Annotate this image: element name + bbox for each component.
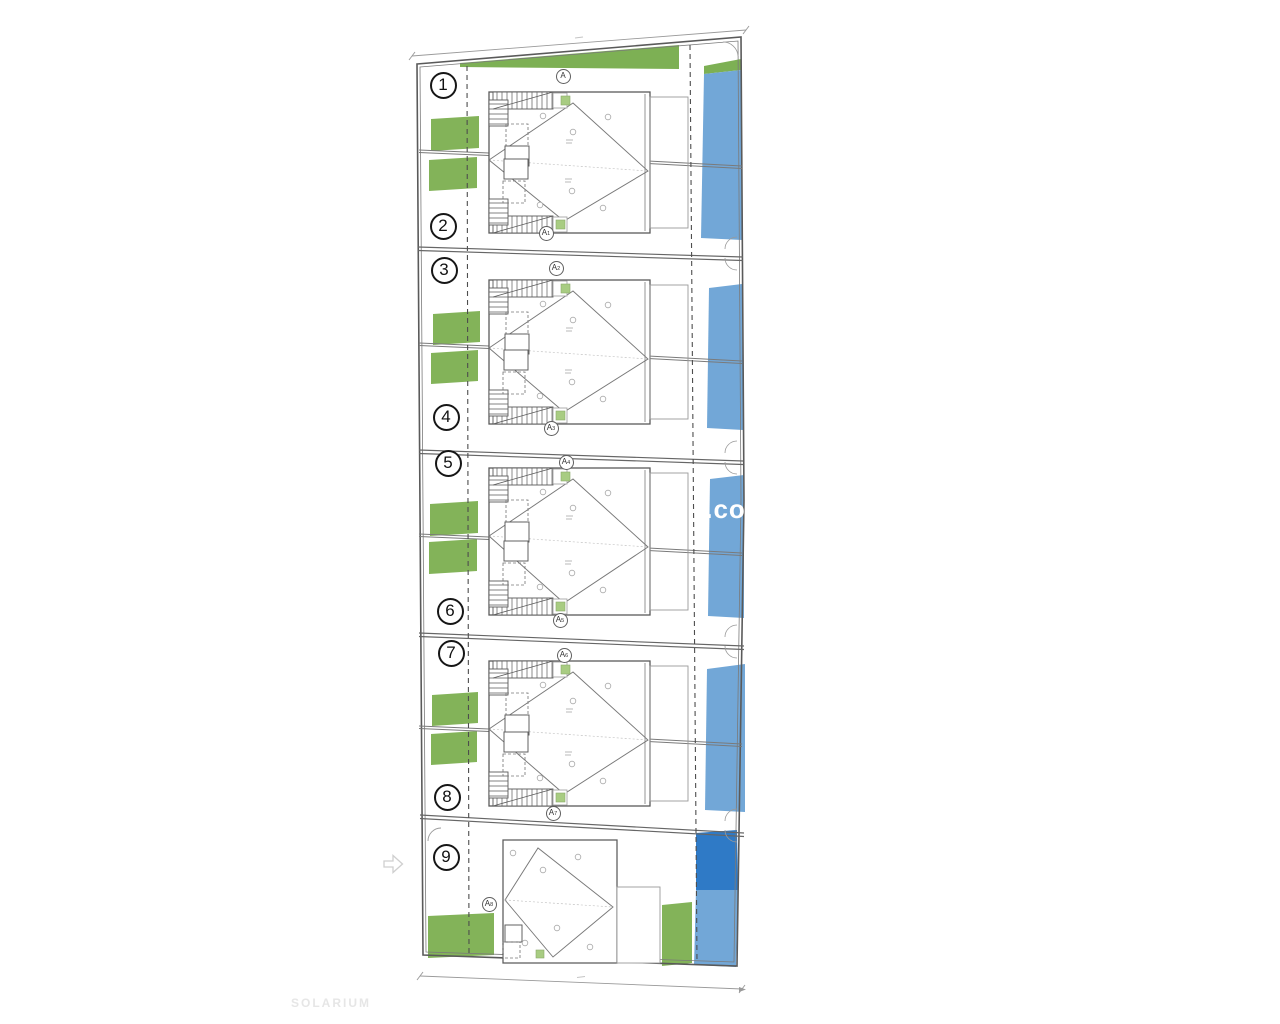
roof-drain xyxy=(554,925,560,931)
section-marker-a8: A8 xyxy=(482,897,497,912)
garden-rect xyxy=(429,157,477,191)
setback-dashed-line xyxy=(690,45,697,963)
section-marker-a7: A7 xyxy=(546,806,561,821)
dimension-label-mark xyxy=(575,37,583,38)
orientation-arrow-icon xyxy=(384,856,403,873)
pool-rect xyxy=(694,890,738,967)
garden-rect xyxy=(428,913,494,958)
dimension-line-top xyxy=(412,30,746,56)
corner-arc xyxy=(725,441,737,453)
roof-drain xyxy=(569,570,575,576)
entry-green-square xyxy=(561,96,570,105)
roof-drain xyxy=(537,584,543,590)
entry-green-square xyxy=(561,284,570,293)
roof-drain xyxy=(605,683,611,689)
entry-green-square xyxy=(561,472,570,481)
roof-drain xyxy=(570,505,576,511)
storage-room xyxy=(505,522,529,542)
corner-arc xyxy=(725,646,737,658)
site-plan-canvas: l.com SOLARIUM 123456789AA1A2A3A4A5A6A7A… xyxy=(0,0,1280,1024)
roof-drain xyxy=(605,490,611,496)
pool-rect xyxy=(701,70,742,240)
pool-rect-dark xyxy=(696,830,738,890)
entry-green-square xyxy=(561,665,570,674)
roof-drain xyxy=(537,775,543,781)
unit-7-badge: 7 xyxy=(438,640,465,667)
dimension-label-mark xyxy=(577,977,585,978)
corner-arc xyxy=(723,42,738,56)
garden-rect xyxy=(430,501,478,536)
unit-6-badge: 6 xyxy=(437,598,464,625)
terrace-outline xyxy=(617,887,660,963)
garden-rect xyxy=(432,692,478,726)
pool-rect xyxy=(707,284,743,430)
roof-drain xyxy=(540,301,546,307)
unit-5-badge: 5 xyxy=(435,450,462,477)
section-marker-a: A xyxy=(556,69,571,84)
unit-9-badge: 9 xyxy=(433,844,460,871)
roof-drain xyxy=(600,205,606,211)
unit-3-badge: 3 xyxy=(431,257,458,284)
roof-drain xyxy=(540,867,546,873)
roof-drain xyxy=(569,379,575,385)
roof-drain xyxy=(605,302,611,308)
roof-drain xyxy=(510,850,516,856)
terrace-outline xyxy=(650,473,688,610)
dimension-line-bottom xyxy=(420,976,742,989)
section-marker-a2: A2 xyxy=(549,261,564,276)
roof-drain xyxy=(605,114,611,120)
unit-2-badge: 2 xyxy=(430,213,457,240)
door-swing-arc xyxy=(428,828,441,841)
section-marker-a3: A3 xyxy=(544,421,559,436)
terrace-outline xyxy=(650,285,688,419)
section-marker-a6: A6 xyxy=(557,648,572,663)
roof-drain xyxy=(537,393,543,399)
watermark-text: l.com xyxy=(697,494,770,525)
section-marker-a4: A4 xyxy=(559,455,574,470)
roof-drain xyxy=(570,317,576,323)
corner-arc xyxy=(725,625,737,637)
building-outline xyxy=(503,840,617,963)
storage-room xyxy=(504,732,528,752)
garden-rect xyxy=(431,731,477,765)
section-marker-a5: A5 xyxy=(553,613,568,628)
roof-drain xyxy=(522,940,528,946)
solarium-label: SOLARIUM xyxy=(291,996,371,1010)
roof-drain xyxy=(600,587,606,593)
entry-green-square xyxy=(556,220,565,229)
unit-4-badge: 4 xyxy=(433,404,460,431)
garden-rect xyxy=(431,116,479,151)
garden-rect xyxy=(431,350,478,384)
entry-green-square xyxy=(536,950,544,958)
entry-green-square xyxy=(556,411,565,420)
unit-8-badge: 8 xyxy=(434,784,461,811)
roof-drain xyxy=(570,698,576,704)
storage-room xyxy=(504,159,528,179)
roof-drain xyxy=(570,129,576,135)
section-marker-a1: A1 xyxy=(539,226,554,241)
storage-room xyxy=(505,925,522,942)
garden-rect xyxy=(433,311,480,345)
storage-room xyxy=(504,541,528,561)
roof-drain xyxy=(540,113,546,119)
roof-drain xyxy=(600,778,606,784)
storage-room xyxy=(504,350,528,370)
garden-rect xyxy=(662,902,692,966)
roof-drain xyxy=(600,396,606,402)
roof-drain xyxy=(569,188,575,194)
garden-rect xyxy=(429,539,477,574)
roof-drain xyxy=(537,202,543,208)
terrace-outline xyxy=(650,666,688,801)
roof-drain xyxy=(587,944,593,950)
roof-drain xyxy=(575,854,581,860)
entry-green-square xyxy=(556,793,565,802)
site-plan-drawing xyxy=(0,0,1280,1024)
roof-drain xyxy=(540,489,546,495)
roof-drain xyxy=(569,761,575,767)
roof-drain xyxy=(540,682,546,688)
entry-green-square xyxy=(556,602,565,611)
unit-1-badge: 1 xyxy=(430,72,457,99)
